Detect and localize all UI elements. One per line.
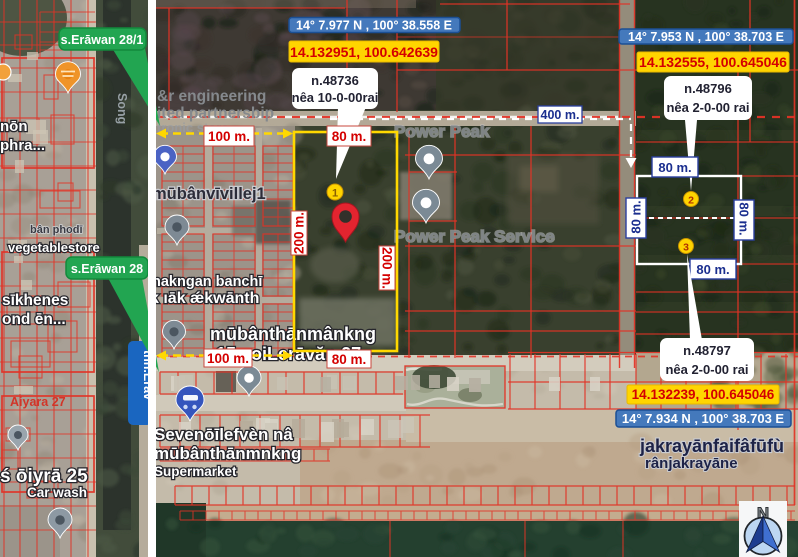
svg-text:1: 1	[332, 188, 338, 200]
svg-text:2: 2	[688, 195, 694, 207]
svg-text:Power Peak: Power Peak	[394, 122, 490, 141]
svg-text:14° 7.953 N , 100° 38.703 E: 14° 7.953 N , 100° 38.703 E	[628, 30, 784, 44]
svg-text:Aiyara 27: Aiyara 27	[10, 395, 66, 409]
svg-text:80 m.: 80 m.	[737, 202, 752, 235]
svg-text:14.132239, 100.645046: 14.132239, 100.645046	[632, 387, 775, 402]
svg-text:80 m.: 80 m.	[658, 160, 691, 175]
svg-text:n.48736: n.48736	[311, 73, 359, 88]
svg-text:s.Erāwan 28/1: s.Erāwan 28/1	[61, 33, 144, 47]
svg-text:80 m.: 80 m.	[696, 262, 729, 277]
svg-text:200 m.: 200 m.	[292, 212, 307, 254]
svg-text:nêa 2-0-00 rai: nêa 2-0-00 rai	[666, 100, 749, 115]
svg-text:Power Peak Service: Power Peak Service	[394, 227, 555, 246]
svg-text:80 m.: 80 m.	[332, 129, 367, 144]
svg-text:100 m.: 100 m.	[207, 351, 249, 366]
svg-text:14.132555, 100.645046: 14.132555, 100.645046	[639, 54, 787, 70]
svg-text:14° 7.977 N , 100° 38.558 E: 14° 7.977 N , 100° 38.558 E	[296, 19, 452, 33]
svg-text:n.48796: n.48796	[684, 81, 732, 96]
svg-text:Sevenōīlefvèn nâ: Sevenōīlefvèn nâ	[154, 425, 293, 444]
svg-text:&r engineering: &r engineering	[157, 88, 266, 105]
svg-text:mūbânthānmnkng: mūbânthānmnkng	[154, 444, 301, 463]
svg-text:vegetablestore: vegetablestore	[8, 240, 100, 255]
svg-text:400 m.: 400 m.	[541, 108, 580, 122]
svg-text:Song: Song	[115, 93, 129, 124]
svg-text:sīkhenes: sīkhenes	[2, 292, 68, 309]
svg-text:rânjakrayāne: rânjakrayāne	[645, 455, 738, 472]
svg-text:bân phodī: bân phodī	[30, 224, 83, 236]
svg-text:Car wash: Car wash	[27, 485, 87, 500]
svg-text:200 m.: 200 m.	[380, 247, 395, 289]
svg-text:ond ēn...: ond ēn...	[2, 311, 66, 328]
svg-text:Supermarket: Supermarket	[154, 464, 237, 479]
svg-text:80 m.: 80 m.	[629, 200, 644, 233]
svg-text:nōn: nōn	[0, 118, 28, 135]
svg-text:k ıāk ǽkwānth: k ıāk ǽkwānth	[150, 290, 259, 307]
svg-text:14° 7.934 N , 100° 38.703 E: 14° 7.934 N , 100° 38.703 E	[622, 411, 785, 426]
svg-text:100 m.: 100 m.	[208, 129, 250, 144]
svg-text:n.48797: n.48797	[683, 343, 731, 358]
svg-text:nakngan banchī: nakngan banchī	[152, 274, 263, 290]
svg-text:jakrayānfaifâfūfù: jakrayānfaifâfūfù	[639, 436, 784, 456]
svg-text:80 m.: 80 m.	[332, 352, 367, 367]
svg-text:mūbânvīvillej1: mūbânvīvillej1	[152, 185, 266, 203]
svg-text:nêa 10-0-00rai: nêa 10-0-00rai	[292, 90, 379, 105]
svg-text:ś ōiyrā 25: ś ōiyrā 25	[0, 466, 88, 487]
svg-text:nêa 2-0-00 rai: nêa 2-0-00 rai	[665, 362, 748, 377]
svg-text:phra...: phra...	[0, 137, 45, 154]
svg-text:s.Erāwan 28: s.Erāwan 28	[71, 262, 143, 276]
svg-text:14.132951, 100.642639: 14.132951, 100.642639	[290, 44, 438, 60]
svg-text:3: 3	[683, 242, 689, 254]
